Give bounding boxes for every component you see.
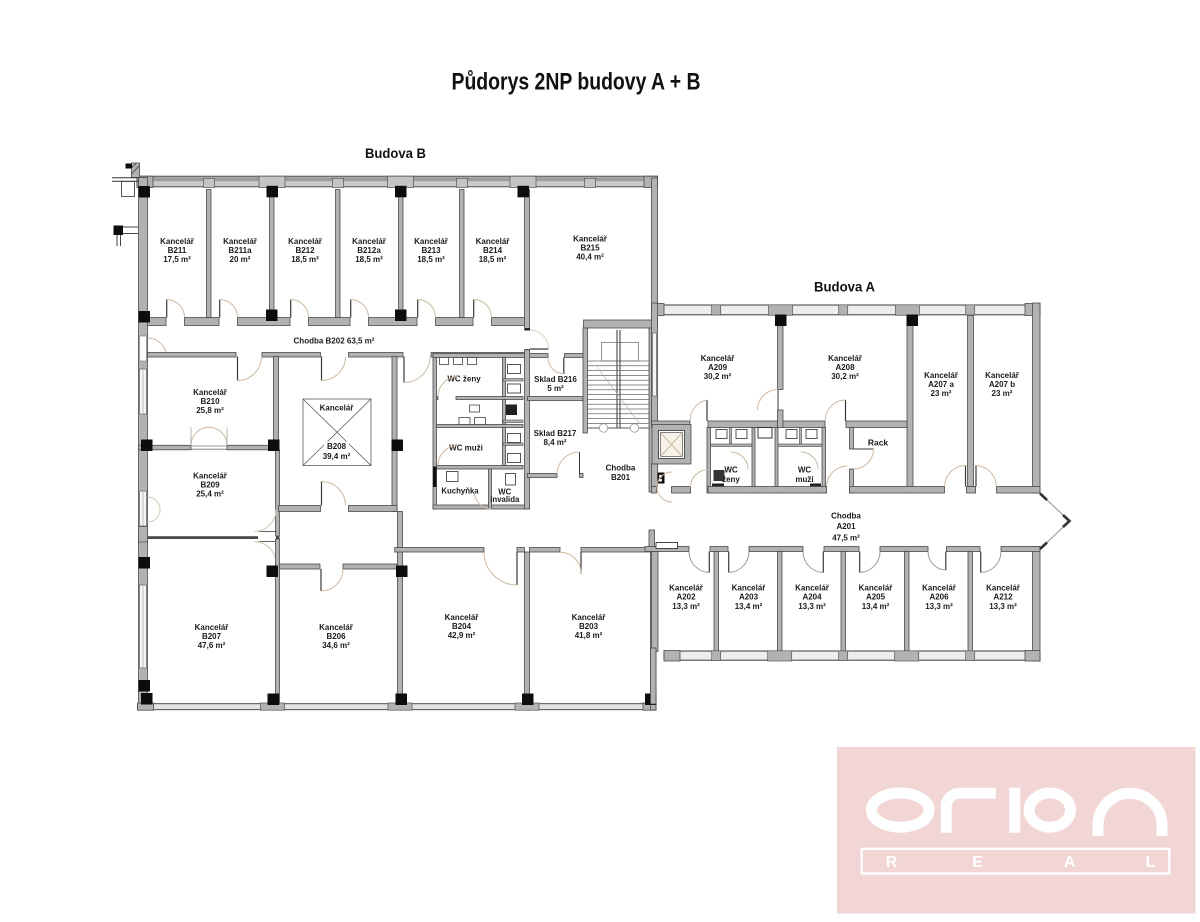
svg-text:Kancelář: Kancelář <box>573 235 608 244</box>
svg-text:Sklad B216: Sklad B216 <box>534 375 577 384</box>
svg-text:13,3 m²: 13,3 m² <box>989 602 1017 611</box>
svg-text:42,9 m²: 42,9 m² <box>448 631 476 640</box>
svg-text:18,5 m²: 18,5 m² <box>479 255 507 264</box>
svg-text:18,5 m²: 18,5 m² <box>417 255 445 264</box>
svg-text:25,4 m²: 25,4 m² <box>196 489 224 498</box>
svg-text:13,3 m²: 13,3 m² <box>798 602 826 611</box>
svg-text:B211: B211 <box>168 246 187 255</box>
svg-text:Kancelář: Kancelář <box>195 623 230 632</box>
svg-text:A203: A203 <box>739 593 759 602</box>
svg-text:ženy: ženy <box>722 475 740 484</box>
svg-text:Kancelář: Kancelář <box>732 584 767 593</box>
svg-text:Kancelář: Kancelář <box>795 584 830 593</box>
svg-text:Chodba B202 63,5 m²: Chodba B202 63,5 m² <box>294 337 375 346</box>
svg-text:Budova B: Budova B <box>365 146 426 161</box>
svg-text:WC ženy: WC ženy <box>447 374 481 383</box>
svg-text:23 m²: 23 m² <box>931 389 952 398</box>
svg-text:B203: B203 <box>579 622 599 631</box>
svg-text:Kancelář: Kancelář <box>985 371 1020 380</box>
svg-text:R: R <box>886 854 898 871</box>
svg-text:5 m²: 5 m² <box>547 384 564 393</box>
svg-text:Sklad B217: Sklad B217 <box>534 429 577 438</box>
svg-text:13,4 m²: 13,4 m² <box>862 602 890 611</box>
svg-text:13,3 m²: 13,3 m² <box>925 602 953 611</box>
svg-text:Kancelář: Kancelář <box>193 388 228 397</box>
svg-text:18,5 m²: 18,5 m² <box>355 255 383 264</box>
svg-text:Kancelář: Kancelář <box>319 623 354 632</box>
svg-text:30,2 m²: 30,2 m² <box>704 372 732 381</box>
svg-text:17,5 m²: 17,5 m² <box>163 255 191 264</box>
svg-text:Budova A: Budova A <box>814 280 875 295</box>
svg-text:B212: B212 <box>295 246 315 255</box>
svg-text:A202: A202 <box>676 593 696 602</box>
svg-text:39,4 m²: 39,4 m² <box>323 452 351 461</box>
svg-text:8,4 m²: 8,4 m² <box>543 438 566 447</box>
svg-text:B207: B207 <box>202 632 222 641</box>
svg-text:invalida: invalida <box>490 495 520 504</box>
svg-text:Kancelář: Kancelář <box>193 472 228 481</box>
svg-text:20 m²: 20 m² <box>230 255 251 264</box>
svg-text:Kancelář: Kancelář <box>922 584 957 593</box>
svg-text:A201: A201 <box>836 522 856 531</box>
svg-text:B215: B215 <box>580 243 600 252</box>
svg-text:Kuchyňka: Kuchyňka <box>441 486 479 495</box>
svg-text:47,6 m²: 47,6 m² <box>198 641 226 650</box>
svg-text:47,5 m²: 47,5 m² <box>832 534 860 543</box>
svg-text:Chodba: Chodba <box>831 512 861 521</box>
svg-text:Kancelář: Kancelář <box>414 237 449 246</box>
svg-text:A: A <box>1064 854 1076 871</box>
svg-text:Kancelář: Kancelář <box>669 584 704 593</box>
svg-text:Kancelář: Kancelář <box>986 584 1021 593</box>
svg-text:18,5 m²: 18,5 m² <box>291 255 319 264</box>
svg-text:B212a: B212a <box>357 246 381 255</box>
svg-text:Rack: Rack <box>868 438 889 448</box>
svg-text:Kancelář: Kancelář <box>924 371 959 380</box>
svg-text:Chodba: Chodba <box>606 464 636 473</box>
svg-text:A207 a: A207 a <box>928 380 954 389</box>
svg-text:E: E <box>972 854 983 871</box>
svg-text:A212: A212 <box>993 593 1013 602</box>
svg-text:WC: WC <box>798 466 812 475</box>
svg-text:Kancelář: Kancelář <box>476 237 511 246</box>
svg-text:A207 b: A207 b <box>989 380 1015 389</box>
svg-text:Kancelář: Kancelář <box>160 237 195 246</box>
svg-text:Půdorys 2NP budovy A + B: Půdorys 2NP budovy A + B <box>452 69 701 96</box>
svg-text:Kancelář: Kancelář <box>445 613 480 622</box>
svg-text:B201: B201 <box>611 473 631 482</box>
svg-text:Kancelář: Kancelář <box>352 237 387 246</box>
svg-text:34,6 m²: 34,6 m² <box>322 641 350 650</box>
svg-text:Kancelář: Kancelář <box>223 237 258 246</box>
svg-text:WC: WC <box>724 466 738 475</box>
svg-text:30,2 m²: 30,2 m² <box>831 372 859 381</box>
svg-text:B208: B208 <box>327 442 347 451</box>
svg-text:A208: A208 <box>835 363 855 372</box>
svg-text:L: L <box>1146 854 1156 871</box>
svg-text:B209: B209 <box>200 480 220 489</box>
svg-text:Kancelář: Kancelář <box>828 354 863 363</box>
svg-text:Kancelář: Kancelář <box>701 354 736 363</box>
svg-text:B213: B213 <box>421 246 441 255</box>
svg-text:40,4 m²: 40,4 m² <box>576 252 604 261</box>
svg-text:Kancelář: Kancelář <box>288 237 323 246</box>
svg-text:Kancelář: Kancelář <box>572 613 607 622</box>
svg-text:A209: A209 <box>708 363 728 372</box>
svg-text:WC muži: WC muži <box>449 444 483 453</box>
svg-text:23 m²: 23 m² <box>992 389 1013 398</box>
svg-text:A204: A204 <box>802 593 822 602</box>
svg-text:A206: A206 <box>929 593 949 602</box>
svg-text:Kancelář: Kancelář <box>859 584 894 593</box>
svg-text:25,8 m²: 25,8 m² <box>196 406 224 415</box>
svg-text:41,8 m²: 41,8 m² <box>575 631 603 640</box>
svg-text:A205: A205 <box>866 593 886 602</box>
svg-text:13,3 m²: 13,3 m² <box>672 602 700 611</box>
svg-text:B211a: B211a <box>228 246 252 255</box>
svg-text:B206: B206 <box>326 632 346 641</box>
svg-text:muži: muži <box>795 475 813 484</box>
svg-text:13,4 m²: 13,4 m² <box>735 602 763 611</box>
svg-text:B214: B214 <box>483 246 503 255</box>
svg-text:B210: B210 <box>200 397 220 406</box>
svg-text:B204: B204 <box>452 622 472 631</box>
svg-text:Kancelář: Kancelář <box>320 404 355 413</box>
